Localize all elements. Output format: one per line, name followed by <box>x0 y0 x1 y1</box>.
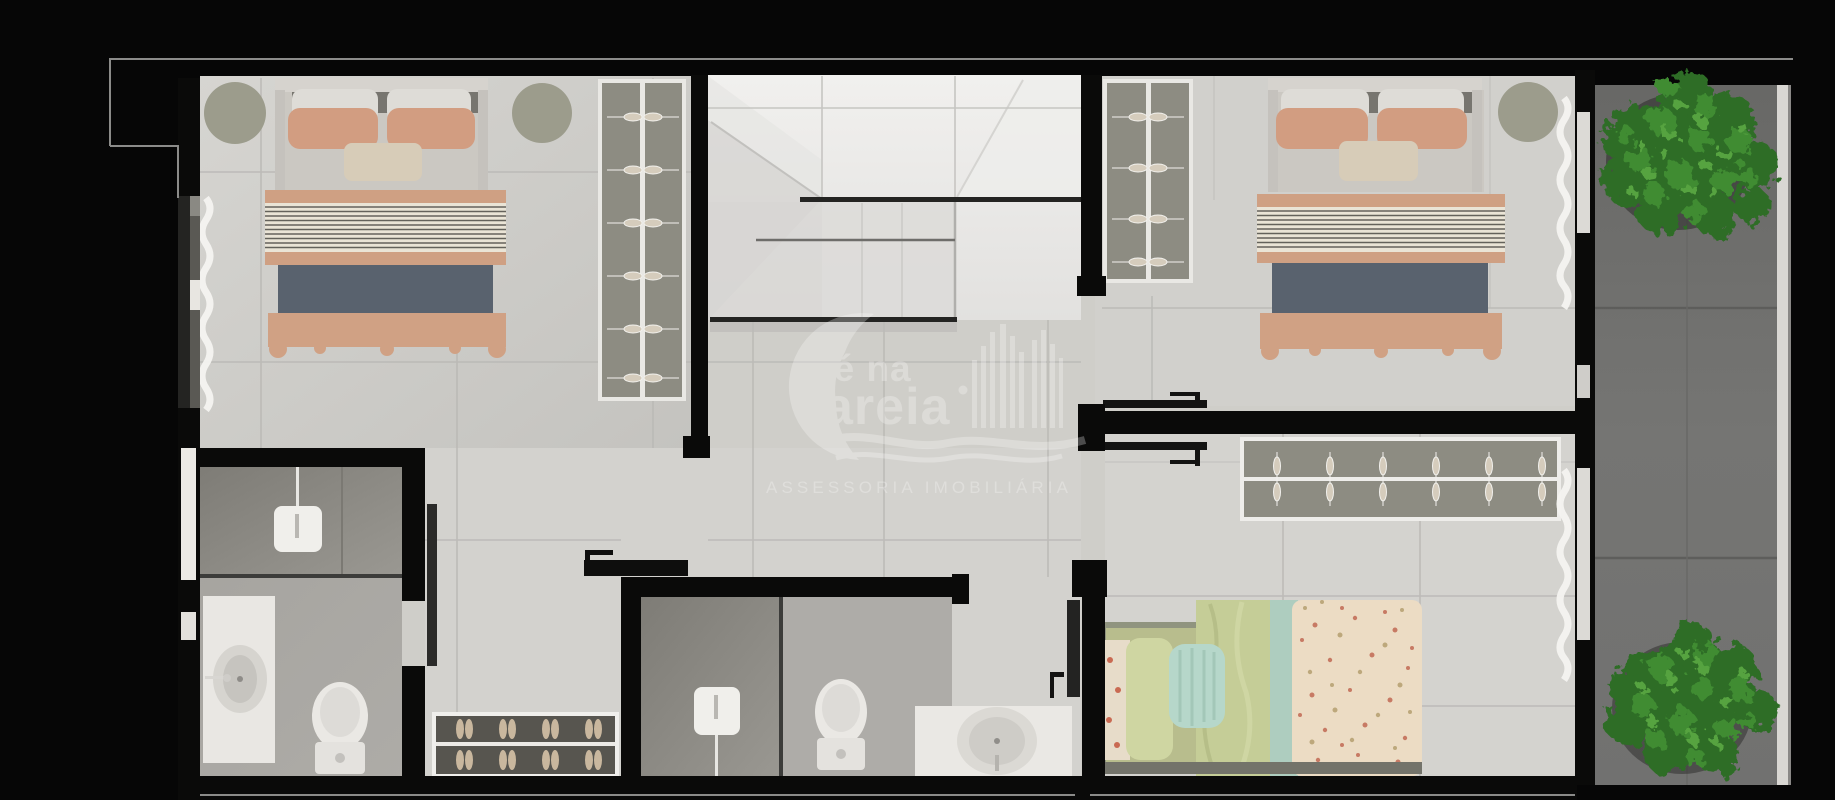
svg-text:ASSESSORIA IMOBILIÁRIA: ASSESSORIA IMOBILIÁRIA <box>766 478 1074 497</box>
svg-text:areia: areia <box>824 378 951 436</box>
